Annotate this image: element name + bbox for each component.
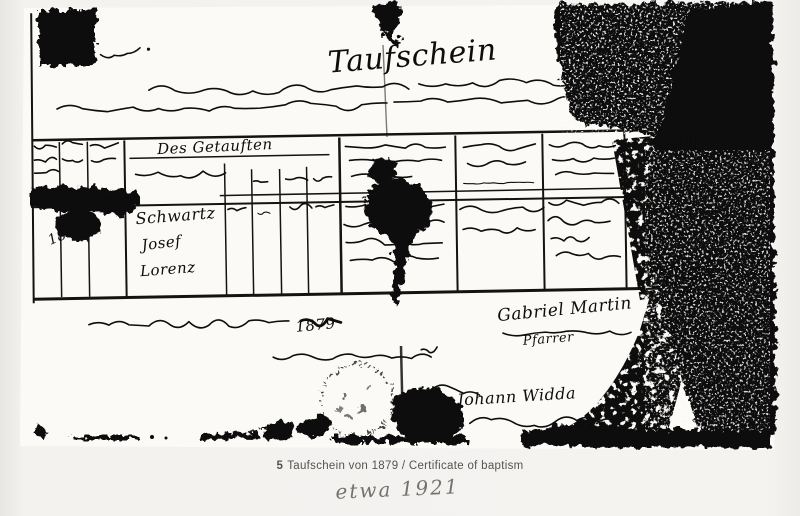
book-page: Taufschein Des Getauften Schwartz Josef … [0, 0, 800, 516]
left-smear-blob [100, 196, 136, 216]
stamp-speckle [347, 414, 353, 420]
bottom-fragment [72, 436, 140, 440]
center-blot [368, 158, 396, 182]
document-scan: Taufschein Des Getauften Schwartz Josef … [0, 0, 800, 455]
stamp-speckle [342, 393, 348, 399]
left-smear-blob [54, 211, 102, 241]
top-left-blot [38, 10, 96, 66]
bottom-fragment [150, 435, 154, 439]
bottom-fragment [333, 436, 468, 443]
stamp-speckle [358, 405, 366, 413]
stamp-speckle [366, 386, 371, 391]
ink-dot [147, 48, 150, 51]
speckle-overlay [645, 150, 770, 445]
date-year: 1879 [295, 314, 337, 336]
figure-number: 5 [277, 460, 284, 472]
handwritten-annotation: etwa 1921 [335, 474, 460, 503]
figure-caption: 5Taufschein von 1879 / Certificate of ba… [277, 460, 524, 472]
figure-caption-text: Taufschein von 1879 / Certificate of bap… [287, 460, 523, 472]
bottom-fragment [165, 437, 168, 440]
stamp-speckle [338, 406, 343, 411]
